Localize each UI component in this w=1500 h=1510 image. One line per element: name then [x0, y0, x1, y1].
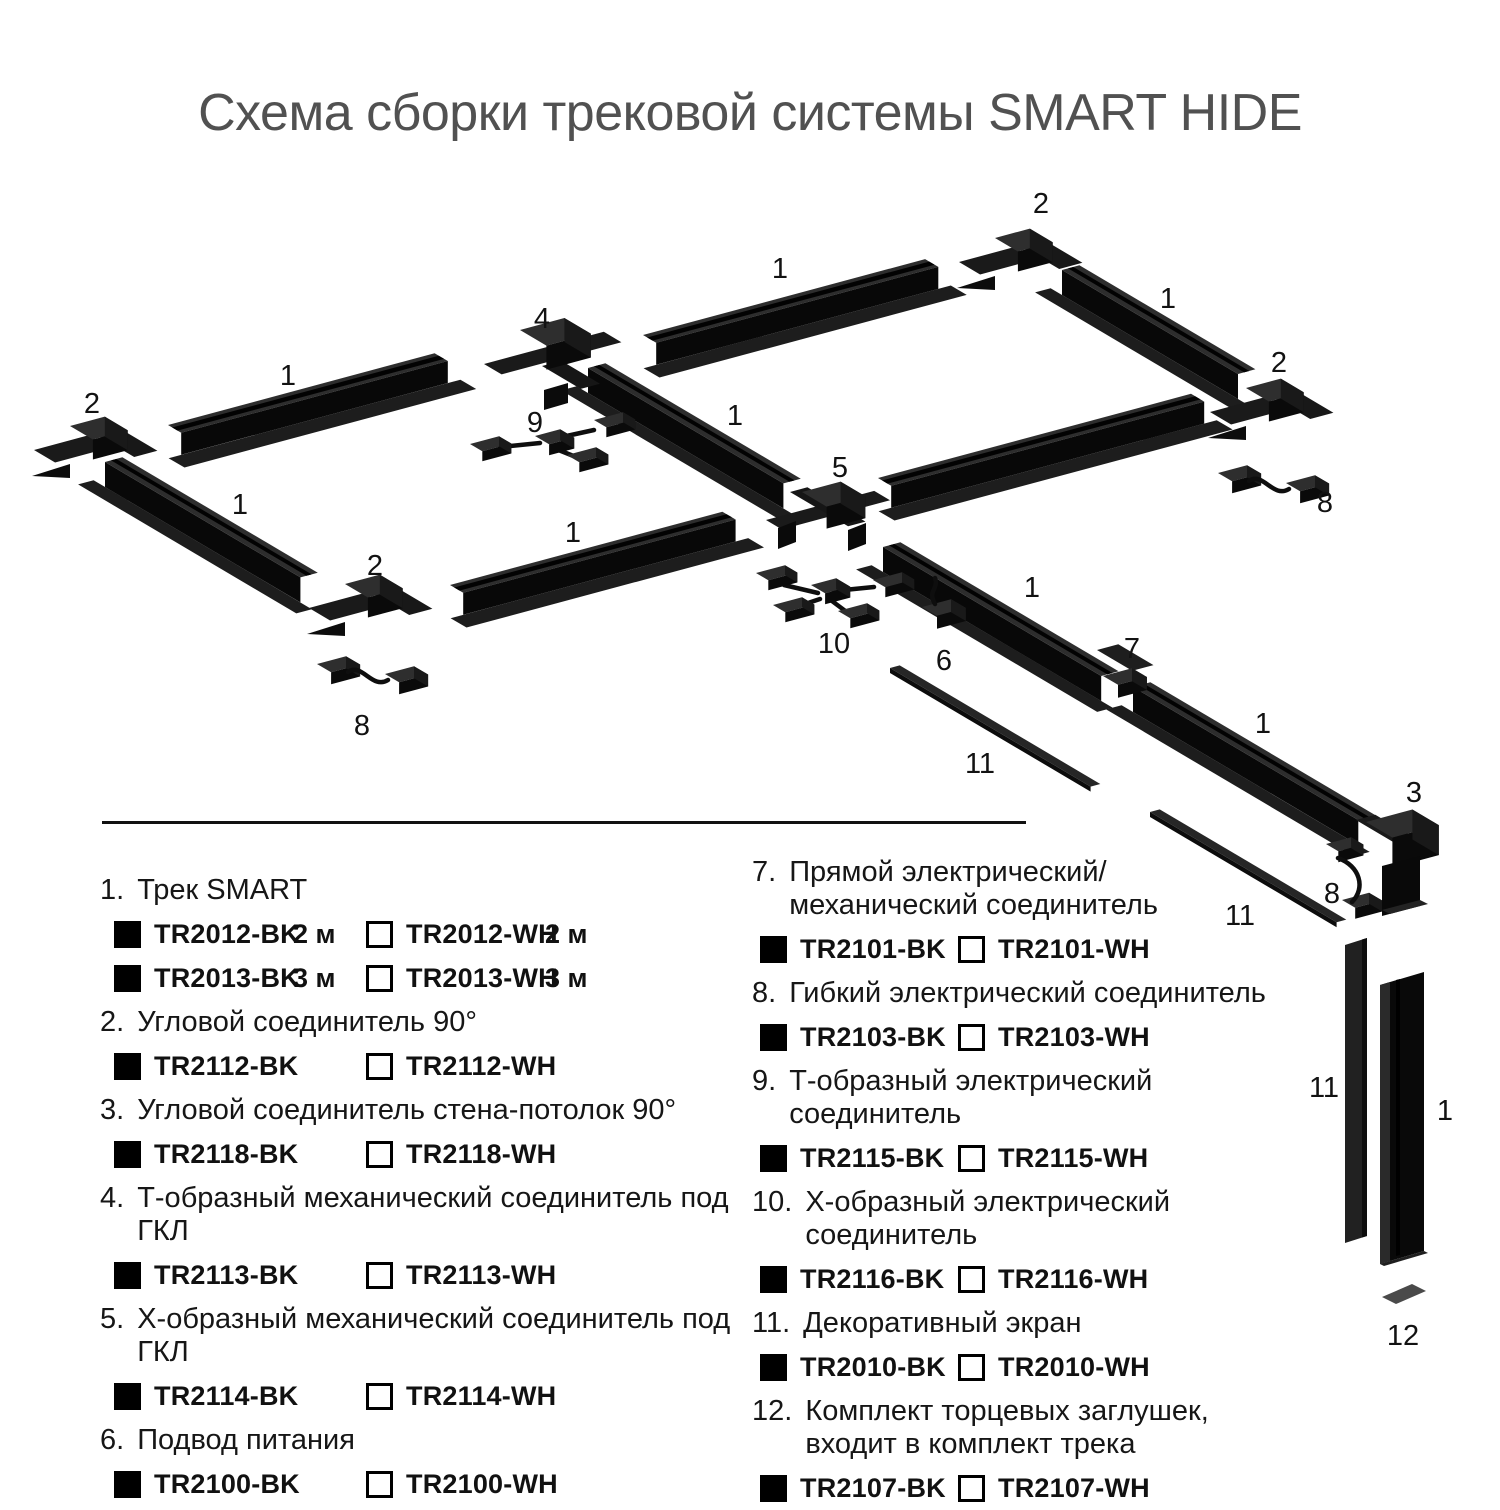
- track-segment: [450, 512, 764, 628]
- white-color-swatch: [958, 1475, 985, 1502]
- legend-item: 2.Угловой соединитель 90°TR2112-BKTR2112…: [100, 1000, 745, 1088]
- legend-item-name: Х-образный электрический соединитель: [805, 1186, 1282, 1252]
- black-color-swatch: [760, 936, 787, 963]
- product-code-black: TR2013-BK: [154, 963, 293, 994]
- legend-variant-row: TR2103-BKTR2103-WH: [752, 1015, 1282, 1059]
- product-code-white: TR2100-WH: [406, 1469, 545, 1500]
- product-code-black: TR2118-BK: [154, 1139, 293, 1170]
- track-length: 3 м: [293, 963, 352, 994]
- legend-item-name: Комплект торцевых заглушек,входит в комп…: [805, 1395, 1208, 1461]
- legend-item-number: 11.: [752, 1307, 790, 1340]
- legend-item-number: 9.: [752, 1065, 776, 1131]
- product-code-black: TR2113-BK: [154, 1260, 293, 1291]
- legend-item-heading: 5.Х-образный механический соединитель по…: [100, 1297, 745, 1374]
- black-color-swatch: [114, 921, 141, 948]
- decorative-screen: [1345, 938, 1367, 1243]
- legend-item-name: Трек SMART: [137, 874, 307, 907]
- legend-item-number: 8.: [752, 977, 776, 1010]
- part-number-label: 1: [1437, 1095, 1453, 1127]
- part-number-label: 1: [565, 517, 581, 549]
- product-code-white: TR2113-WH: [406, 1260, 545, 1291]
- corner-connector: [307, 575, 432, 636]
- part-number-label: 1: [232, 489, 248, 521]
- legend-item-number: 12.: [752, 1395, 792, 1461]
- white-color-swatch: [958, 936, 985, 963]
- track-segment: [561, 363, 801, 519]
- legend-item-heading: 12.Комплект торцевых заглушек,входит в к…: [752, 1389, 1282, 1466]
- legend-item: 9.Т-образный электрический соединительTR…: [752, 1059, 1282, 1180]
- track-segment: [168, 353, 476, 467]
- part-number-label: 9: [527, 407, 543, 439]
- legend-variant-row: TR2114-BKTR2114-WH: [100, 1374, 745, 1418]
- white-color-swatch: [366, 1053, 393, 1080]
- legend-item: 11.Декоративный экранTR2010-BKTR2010-WH: [752, 1301, 1282, 1389]
- part-number-label: 10: [818, 628, 850, 660]
- legend-item-name: Угловой соединитель стена-потолок 90°: [137, 1094, 676, 1127]
- legend-variant-row: TR2116-BKTR2116-WH: [752, 1257, 1282, 1301]
- white-color-swatch: [366, 1383, 393, 1410]
- product-code-black: TR2107-BK: [800, 1473, 950, 1504]
- white-color-swatch: [958, 1145, 985, 1172]
- legend-item-heading: 7.Прямой электрический/механический соед…: [752, 850, 1282, 927]
- product-code-black: TR2112-BK: [154, 1051, 293, 1082]
- legend-item-name: Т-образный механический соединитель под …: [137, 1182, 745, 1248]
- legend-variant-row: TR2107-BKTR2107-WH: [752, 1466, 1282, 1510]
- track-segment: [856, 542, 1119, 712]
- white-color-swatch: [366, 1262, 393, 1289]
- product-code-white: TR2114-WH: [406, 1381, 545, 1412]
- part-number-label: 1: [772, 253, 788, 285]
- part-number-label: 11: [965, 748, 995, 780]
- product-code-black: TR2116-BK: [800, 1264, 950, 1295]
- legend-left-column: 1.Трек SMARTTR2012-BK2 мTR2012-WH2 мTR20…: [100, 868, 745, 1506]
- black-color-swatch: [114, 965, 141, 992]
- legend-variant-row: TR2118-BKTR2118-WH: [100, 1132, 745, 1176]
- legend-item: 12.Комплект торцевых заглушек,входит в к…: [752, 1389, 1282, 1510]
- black-color-swatch: [760, 1354, 787, 1381]
- product-code-white: TR2107-WH: [998, 1473, 1148, 1504]
- product-code-black: TR2100-BK: [154, 1469, 293, 1500]
- part-number-label: 5: [832, 452, 848, 484]
- product-code-white: TR2103-WH: [998, 1022, 1148, 1053]
- legend-item-number: 10.: [752, 1186, 792, 1252]
- white-color-swatch: [366, 1471, 393, 1498]
- legend-item-heading: 6.Подвод питания: [100, 1418, 745, 1462]
- legend-variant-row: TR2101-BKTR2101-WH: [752, 927, 1282, 971]
- legend-variant-row: TR2010-BKTR2010-WH: [752, 1345, 1282, 1389]
- legend-item-number: 1.: [100, 874, 124, 907]
- track-segment: [1380, 972, 1428, 1266]
- white-color-swatch: [958, 1266, 985, 1293]
- legend-item-number: 4.: [100, 1182, 124, 1248]
- part-number-label: 2: [1271, 347, 1287, 379]
- black-color-swatch: [760, 1266, 787, 1293]
- part-number-label: 8: [1317, 487, 1333, 519]
- legend-item-heading: 1.Трек SMART: [100, 868, 745, 912]
- legend-item: 5.Х-образный механический соединитель по…: [100, 1297, 745, 1418]
- legend-variant-row: TR2115-BKTR2115-WH: [752, 1136, 1282, 1180]
- legend-variant-row: TR2013-BK3 мTR2013-WH3 м: [100, 956, 745, 1000]
- part-number-label: 2: [1033, 188, 1049, 220]
- black-color-swatch: [760, 1475, 787, 1502]
- white-color-swatch: [958, 1024, 985, 1051]
- legend-item-number: 3.: [100, 1094, 124, 1127]
- part-number-label: 4: [534, 303, 550, 335]
- product-code-black: TR2114-BK: [154, 1381, 293, 1412]
- legend-item-name: Т-образный электрический соединитель: [789, 1065, 1282, 1131]
- legend-item-heading: 2.Угловой соединитель 90°: [100, 1000, 745, 1044]
- legend-item: 7.Прямой электрический/механический соед…: [752, 850, 1282, 971]
- legend-item-heading: 11.Декоративный экран: [752, 1301, 1282, 1345]
- legend-item: 10.Х-образный электрический соединительT…: [752, 1180, 1282, 1301]
- black-color-swatch: [114, 1053, 141, 1080]
- white-color-swatch: [958, 1354, 985, 1381]
- part-number-label: 1: [280, 360, 296, 392]
- part-number-label: 1: [1160, 283, 1176, 315]
- part-number-label: 2: [367, 550, 383, 582]
- legend-item-name: Х-образный механический соединитель под …: [137, 1303, 745, 1369]
- track-segment: [78, 457, 318, 613]
- legend-item-number: 2.: [100, 1006, 124, 1039]
- legend-item-name: Гибкий электрический соединитель: [789, 977, 1266, 1010]
- end-cap: [1382, 1284, 1426, 1304]
- part-number-label: 3: [1406, 777, 1422, 809]
- product-code-white: TR2118-WH: [406, 1139, 545, 1170]
- legend-item-name: Подвод питания: [137, 1424, 355, 1457]
- product-code-white: TR2012-WH: [406, 919, 545, 950]
- part-number-label: 1: [1024, 572, 1040, 604]
- legend-item-heading: 3.Угловой соединитель стена-потолок 90°: [100, 1088, 745, 1132]
- black-color-swatch: [760, 1024, 787, 1051]
- part-number-label: 2: [84, 388, 100, 420]
- track-length: 3 м: [545, 963, 604, 994]
- legend-item-heading: 10.Х-образный электрический соединитель: [752, 1180, 1282, 1257]
- product-code-white: TR2112-WH: [406, 1051, 545, 1082]
- track-length: 2 м: [293, 919, 352, 950]
- page: Схема сборки трековой системы SMART HIDE…: [0, 0, 1500, 1500]
- legend-item-name: Прямой электрический/механический соедин…: [789, 856, 1158, 922]
- part-number-label: 1: [1255, 708, 1271, 740]
- cross-mechanical-connector: [766, 482, 890, 551]
- white-color-swatch: [366, 921, 393, 948]
- legend-item-number: 7.: [752, 856, 776, 922]
- legend-variant-row: TR2113-BKTR2113-WH: [100, 1253, 745, 1297]
- flexible-connector: [1218, 465, 1329, 503]
- product-code-black: TR2115-BK: [800, 1143, 950, 1174]
- product-code-black: TR2103-BK: [800, 1022, 950, 1053]
- part-number-label: 6: [936, 645, 952, 677]
- track-segment: [1106, 682, 1376, 856]
- legend-item: 4.Т-образный механический соединитель по…: [100, 1176, 745, 1297]
- black-color-swatch: [760, 1145, 787, 1172]
- legend-item-heading: 4.Т-образный механический соединитель по…: [100, 1176, 745, 1253]
- track-segment: [878, 394, 1233, 521]
- part-number-label: 12: [1387, 1320, 1419, 1352]
- legend-item: 3.Угловой соединитель стена-потолок 90°T…: [100, 1088, 745, 1176]
- legend-item-name: Угловой соединитель 90°: [137, 1006, 477, 1039]
- part-number-label: 8: [354, 710, 370, 742]
- black-color-swatch: [114, 1141, 141, 1168]
- black-color-swatch: [114, 1262, 141, 1289]
- legend-right-column: 7.Прямой электрический/механический соед…: [752, 850, 1282, 1510]
- legend-item-heading: 8.Гибкий электрический соединитель: [752, 971, 1282, 1015]
- legend-divider: [102, 821, 1026, 824]
- black-color-swatch: [114, 1471, 141, 1498]
- white-color-swatch: [366, 965, 393, 992]
- part-number-label: 1: [727, 400, 743, 432]
- legend-variant-row: TR2012-BK2 мTR2012-WH2 м: [100, 912, 745, 956]
- product-code-white: TR2116-WH: [998, 1264, 1148, 1295]
- product-code-black: TR2010-BK: [800, 1352, 950, 1383]
- product-code-white: TR2115-WH: [998, 1143, 1148, 1174]
- track-segment: [1035, 265, 1255, 410]
- legend-item-number: 5.: [100, 1303, 124, 1369]
- track-segment: [643, 259, 967, 377]
- legend-variant-row: TR2112-BKTR2112-WH: [100, 1044, 745, 1088]
- part-number-label: 8: [1324, 878, 1340, 910]
- part-number-label: 7: [1124, 633, 1140, 665]
- legend-item: 6.Подвод питанияTR2100-BKTR2100-WH: [100, 1418, 745, 1506]
- legend-variant-row: TR2100-BKTR2100-WH: [100, 1462, 745, 1506]
- product-code-black: TR2101-BK: [800, 934, 950, 965]
- legend-item: 8.Гибкий электрический соединительTR2103…: [752, 971, 1282, 1059]
- part-number-label: 11: [1309, 1072, 1339, 1104]
- legend-item-name: Декоративный экран: [803, 1307, 1081, 1340]
- white-color-swatch: [366, 1141, 393, 1168]
- product-code-black: TR2012-BK: [154, 919, 293, 950]
- product-code-white: TR2101-WH: [998, 934, 1148, 965]
- track-length: 2 м: [545, 919, 604, 950]
- legend-item-number: 6.: [100, 1424, 124, 1457]
- legend-item-heading: 9.Т-образный электрический соединитель: [752, 1059, 1282, 1136]
- black-color-swatch: [114, 1383, 141, 1410]
- tee-electrical-connector: [470, 412, 635, 472]
- product-code-white: TR2013-WH: [406, 963, 545, 994]
- flexible-connector: [317, 656, 428, 694]
- legend-item: 1.Трек SMARTTR2012-BK2 мTR2012-WH2 мTR20…: [100, 868, 745, 1000]
- product-code-white: TR2010-WH: [998, 1352, 1148, 1383]
